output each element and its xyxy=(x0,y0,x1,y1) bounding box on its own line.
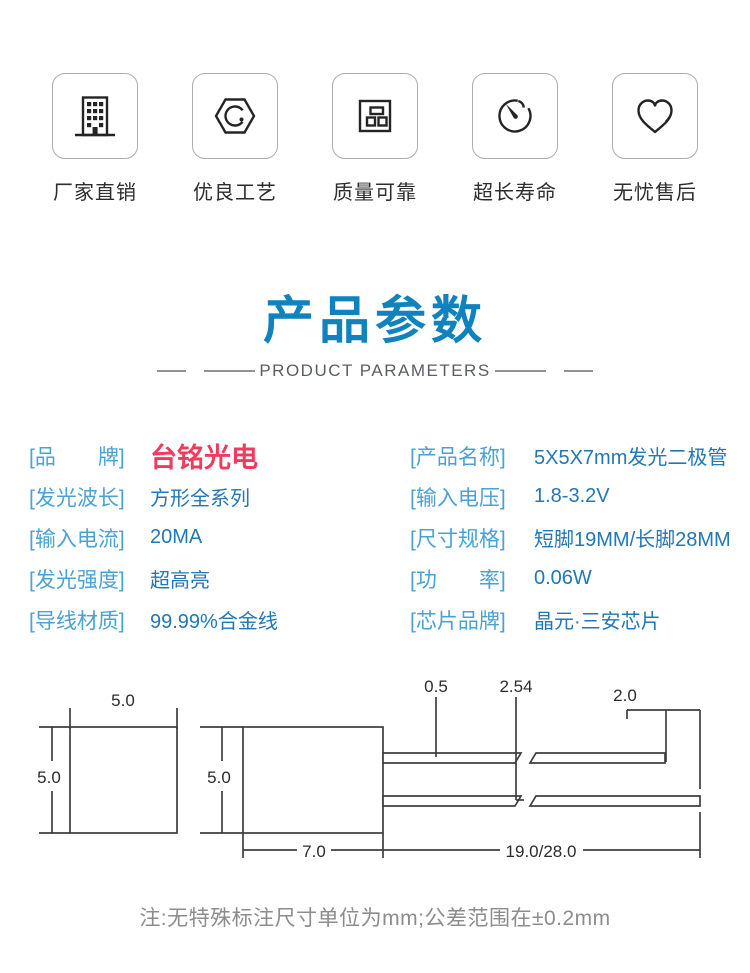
craft-gear-hexagon-icon xyxy=(192,73,278,159)
spec-value: 超高亮 xyxy=(150,564,210,593)
dim-bottom-group: 7.0 19.0/28.0 xyxy=(243,833,700,861)
page-title: 产品参数 xyxy=(0,292,750,351)
feature-item-factory: 厂家直销 xyxy=(51,73,139,205)
dim-lead-length: 19.0/28.0 xyxy=(506,842,577,861)
spec-label: [输入电压] xyxy=(410,482,534,512)
spec-value: 0.06W xyxy=(534,567,592,590)
spec-value: 1.8-3.2V xyxy=(534,485,610,508)
dim-lead-end-offset: 2.0 xyxy=(613,686,637,705)
divider-dash xyxy=(495,370,546,372)
dim-front-height: 5.0 xyxy=(37,768,61,787)
spec-row-voltage: [输入电压] 1.8-3.2V xyxy=(410,476,745,517)
heart-icon xyxy=(612,73,698,159)
feature-label: 超长寿命 xyxy=(473,176,557,205)
title-block: 产品参数 PRODUCT PARAMETERS xyxy=(0,292,750,381)
led-leads xyxy=(383,753,700,806)
led-dimension-diagram: 5.0 5.0 5.0 xyxy=(0,650,750,890)
spec-value: 20MA xyxy=(150,526,202,549)
spec-value: 方形全系列 xyxy=(150,482,250,511)
spec-label: [输入电流] xyxy=(29,523,150,553)
spec-row-product-name: [产品名称] 5X5X7mm发光二极管 xyxy=(410,435,745,476)
brand-value: 台铭光电 xyxy=(150,436,258,475)
feature-label: 厂家直销 xyxy=(53,176,137,205)
quality-blocks-icon xyxy=(332,73,418,159)
feature-label: 无忧售后 xyxy=(613,176,697,205)
spec-row-chip: [芯片品牌] 晶元·三安芯片 xyxy=(410,599,745,640)
spec-label: [芯片品牌] xyxy=(410,605,534,635)
spec-label: [发光强度] xyxy=(29,564,150,594)
dim-lead-thickness-group: 0.5 xyxy=(424,677,448,757)
dim-front-width: 5.0 xyxy=(111,691,135,710)
feature-item-craft: 优良工艺 xyxy=(191,73,279,205)
dim-lead-end-offset-group: 2.0 xyxy=(613,686,700,858)
front-view: 5.0 5.0 xyxy=(37,691,177,833)
spec-value: 99.99%合金线 xyxy=(150,605,278,634)
feature-item-lifespan: 超长寿命 xyxy=(471,73,559,205)
dim-body-length: 7.0 xyxy=(302,842,326,861)
spec-label: [产品名称] xyxy=(410,441,534,471)
spec-row-brand: [品 牌] 台铭光电 xyxy=(29,435,379,476)
building-icon xyxy=(52,73,138,159)
feature-label: 质量可靠 xyxy=(333,176,417,205)
dim-lead-pitch-group: 2.54 xyxy=(499,677,532,800)
features-row: 厂家直销 优良工艺 质量可靠 xyxy=(0,73,750,205)
spec-label: [功 率] xyxy=(410,564,534,594)
spec-row-wavelength: [发光波长] 方形全系列 xyxy=(29,476,379,517)
spec-label: [品 牌] xyxy=(29,441,150,471)
divider-dash xyxy=(564,370,593,372)
spec-row-size: [尺寸规格] 短脚19MM/长脚28MM xyxy=(410,517,745,558)
page-subtitle: PRODUCT PARAMETERS xyxy=(259,361,490,381)
spec-label: [尺寸规格] xyxy=(410,523,534,553)
stopwatch-icon xyxy=(472,73,558,159)
dim-lead-pitch: 2.54 xyxy=(499,677,532,696)
spec-label: [导线材质] xyxy=(29,605,150,635)
divider-dash xyxy=(204,370,255,372)
subtitle-row: PRODUCT PARAMETERS xyxy=(0,361,750,381)
tolerance-note: 注:无特殊标注尺寸单位为mm;公差范围在±0.2mm xyxy=(0,902,750,932)
dimension-drawing: 5.0 5.0 5.0 xyxy=(0,650,750,890)
spec-column-left: [品 牌] 台铭光电 [发光波长] 方形全系列 [输入电流] 20MA [发光强… xyxy=(29,435,379,640)
spec-row-brightness: [发光强度] 超高亮 xyxy=(29,558,379,599)
spec-column-right: [产品名称] 5X5X7mm发光二极管 [输入电压] 1.8-3.2V [尺寸规… xyxy=(410,435,745,640)
side-view: 5.0 xyxy=(200,727,383,833)
feature-item-quality: 质量可靠 xyxy=(331,73,419,205)
spec-value: 5X5X7mm发光二极管 xyxy=(534,441,727,470)
product-parameters-page: 厂家直销 优良工艺 质量可靠 xyxy=(0,0,750,973)
dim-side-height: 5.0 xyxy=(207,768,231,787)
dim-lead-thickness: 0.5 xyxy=(424,677,448,696)
divider-dash xyxy=(157,370,186,372)
spec-row-current: [输入电流] 20MA xyxy=(29,517,379,558)
spec-row-wire: [导线材质] 99.99%合金线 xyxy=(29,599,379,640)
feature-label: 优良工艺 xyxy=(193,176,277,205)
spec-row-power: [功 率] 0.06W xyxy=(410,558,745,599)
spec-value: 短脚19MM/长脚28MM xyxy=(534,523,731,552)
spec-label: [发光波长] xyxy=(29,482,150,512)
feature-item-aftersale: 无忧售后 xyxy=(611,73,699,205)
spec-value: 晶元·三安芯片 xyxy=(534,605,661,634)
